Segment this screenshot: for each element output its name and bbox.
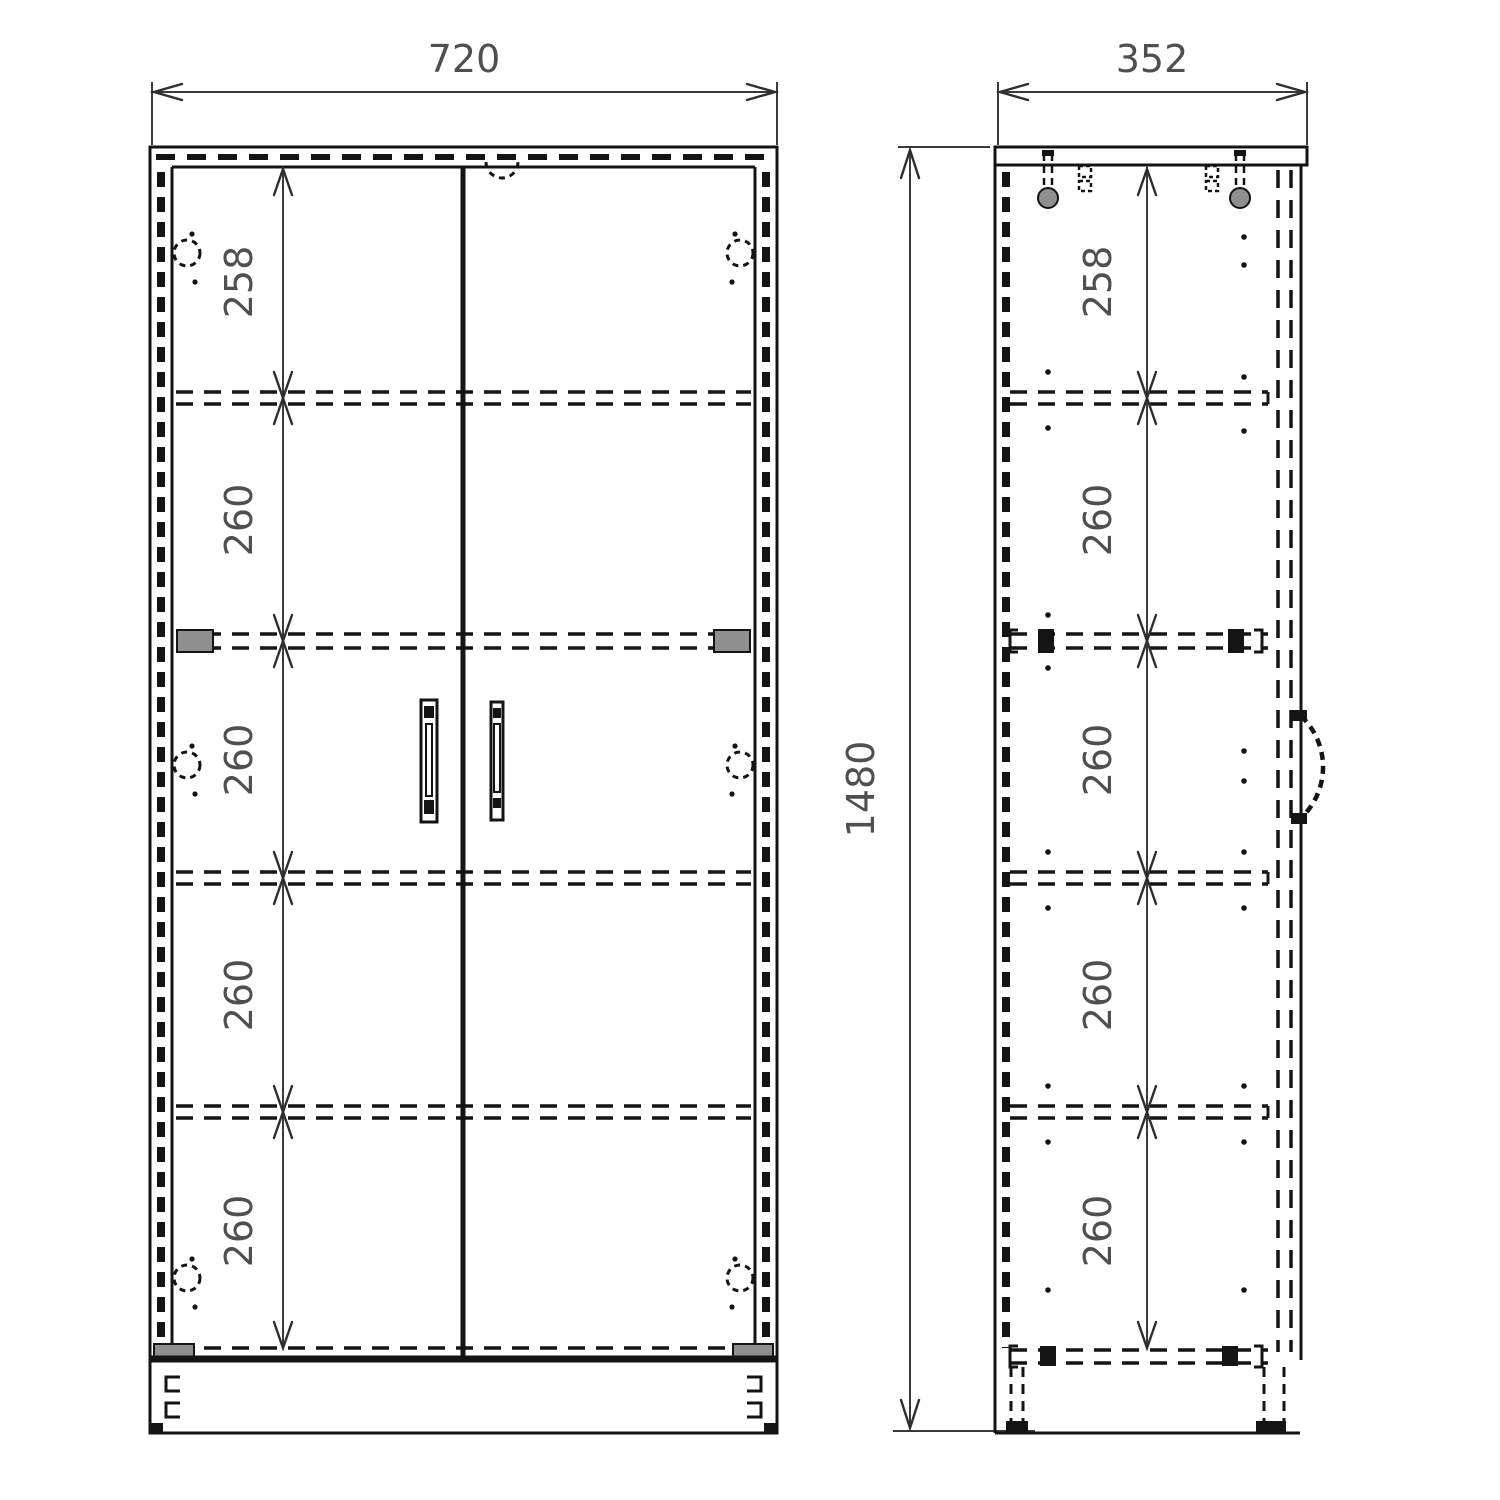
pin-hole-dot bbox=[1241, 1139, 1247, 1145]
handle-slot bbox=[494, 724, 500, 792]
pin-hole-dot bbox=[1045, 905, 1051, 911]
side-section-label-1: 260 bbox=[1076, 484, 1120, 557]
pin-hole-dot bbox=[1045, 612, 1051, 618]
pin-hole-dot bbox=[1045, 369, 1051, 375]
handle-screw bbox=[493, 708, 501, 718]
shelf-cam-icon bbox=[1228, 629, 1244, 653]
pin-hole-dot bbox=[1045, 1139, 1051, 1145]
pin-hole-dot bbox=[1045, 849, 1051, 855]
handle-side-profile bbox=[1291, 710, 1323, 824]
plinth-outline bbox=[150, 1360, 777, 1433]
handle-mount bbox=[1291, 813, 1307, 824]
pin-hole-dot bbox=[1045, 425, 1051, 431]
cam-lock-notch-icon bbox=[486, 162, 518, 178]
plinth-clip-icon bbox=[747, 1377, 761, 1391]
cabinet-drawing: 720 bbox=[0, 0, 1500, 1500]
shelf-bracket-icon bbox=[1254, 1346, 1262, 1367]
hinge-screw-dot bbox=[732, 1256, 737, 1261]
foot-block-icon bbox=[150, 1423, 163, 1433]
pin-hole-dot bbox=[1241, 234, 1247, 240]
side-section-label-3: 260 bbox=[1076, 959, 1120, 1032]
hinge-screw-dot bbox=[192, 791, 197, 796]
clip bbox=[1206, 181, 1218, 191]
side-section-label-2: 260 bbox=[1076, 724, 1120, 797]
side-view: 352 bbox=[995, 37, 1323, 1433]
pin-hole-dot bbox=[1241, 905, 1247, 911]
height-label: 1480 bbox=[839, 741, 883, 838]
height-dimension: 1480 bbox=[839, 147, 1035, 1431]
foot-block-icon bbox=[764, 1423, 777, 1433]
hinge-icon bbox=[174, 1265, 200, 1291]
hinge-screw-dot bbox=[732, 743, 737, 748]
handle-screw bbox=[424, 706, 434, 718]
shelf-fitting-icon bbox=[177, 630, 213, 652]
shelf-bracket-icon bbox=[1254, 630, 1262, 652]
hinge-screw-dot bbox=[732, 231, 737, 236]
hinge-screw-dot bbox=[192, 279, 197, 284]
bolt-head bbox=[1038, 188, 1058, 208]
handle-screw bbox=[493, 798, 501, 808]
handle-slot bbox=[426, 724, 432, 796]
front-section-label-0: 258 bbox=[217, 246, 261, 319]
foot-block-icon bbox=[1006, 1421, 1028, 1433]
pin-hole-dot bbox=[1241, 1287, 1247, 1293]
pin-hole-dot bbox=[1045, 1287, 1051, 1293]
plinth-clip-icon bbox=[747, 1403, 761, 1417]
front-section-dimensions: 258 260 260 260 260 bbox=[217, 167, 292, 1348]
pin-hole-dot bbox=[1241, 1083, 1247, 1089]
foot-block-icon bbox=[1256, 1421, 1286, 1433]
hinge-screw-dot bbox=[729, 791, 734, 796]
plinth-clip-icon bbox=[166, 1403, 180, 1417]
plinth-clip-icon bbox=[166, 1377, 180, 1391]
hinge-screw-dot bbox=[189, 1256, 194, 1261]
pin-hole-dot bbox=[1241, 849, 1247, 855]
clip bbox=[1079, 166, 1091, 177]
handle-arc-icon bbox=[1301, 716, 1323, 818]
side-section-label-0: 258 bbox=[1076, 246, 1120, 319]
front-width-dimension: 720 bbox=[152, 37, 777, 145]
shelf-cam-icon bbox=[1222, 1346, 1238, 1366]
front-section-label-4: 260 bbox=[217, 1195, 261, 1268]
pin-hole-dot bbox=[1241, 748, 1247, 754]
side-legs bbox=[995, 1367, 1300, 1433]
cam-bolt-icon bbox=[1038, 150, 1058, 208]
pin-hole-dot bbox=[1241, 778, 1247, 784]
front-width-label: 720 bbox=[428, 37, 501, 81]
hinge-screw-dot bbox=[189, 743, 194, 748]
top-panel-side bbox=[995, 147, 1307, 165]
door-handle-right bbox=[491, 702, 503, 820]
front-section-label-2: 260 bbox=[217, 724, 261, 797]
hinge-icon bbox=[727, 240, 753, 266]
bolt-head bbox=[1230, 188, 1250, 208]
pin-hole-dot bbox=[1045, 1083, 1051, 1089]
technical-drawing-canvas: 720 bbox=[0, 0, 1500, 1500]
side-depth-dimension: 352 bbox=[998, 37, 1307, 145]
hinge-screw-dot bbox=[189, 231, 194, 236]
front-plinth bbox=[150, 1360, 777, 1433]
pin-hole-dot bbox=[1241, 262, 1247, 268]
clip bbox=[1206, 166, 1218, 177]
door-handle-left bbox=[421, 700, 437, 822]
side-shelves bbox=[1010, 392, 1268, 1367]
handle-screw bbox=[424, 800, 434, 814]
shelf-cam-icon bbox=[1040, 1346, 1056, 1366]
hinge-icon bbox=[727, 752, 753, 778]
hinge-icon bbox=[174, 240, 200, 266]
hinge-icon bbox=[727, 1265, 753, 1291]
handle-mount bbox=[1291, 710, 1307, 721]
front-view: 720 bbox=[150, 37, 777, 1433]
hinge-screw-dot bbox=[729, 1304, 734, 1309]
shelf-cam-icon bbox=[1038, 629, 1054, 653]
pin-hole-dot bbox=[1045, 665, 1051, 671]
hinge-icon bbox=[174, 752, 200, 778]
hinge-screw-dot bbox=[729, 279, 734, 284]
pin-hole-dot bbox=[1241, 428, 1247, 434]
side-depth-label: 352 bbox=[1116, 37, 1189, 81]
front-section-label-1: 260 bbox=[217, 484, 261, 557]
hinge-screw-dot bbox=[192, 1304, 197, 1309]
side-section-label-4: 260 bbox=[1076, 1195, 1120, 1268]
front-section-label-3: 260 bbox=[217, 959, 261, 1032]
cam-bolt-icon bbox=[1230, 150, 1250, 208]
clip bbox=[1079, 181, 1091, 191]
pin-hole-dot bbox=[1241, 374, 1247, 380]
shelf-fitting-icon bbox=[714, 630, 750, 652]
side-section-dimensions: 258 260 260 260 260 bbox=[1076, 167, 1156, 1348]
